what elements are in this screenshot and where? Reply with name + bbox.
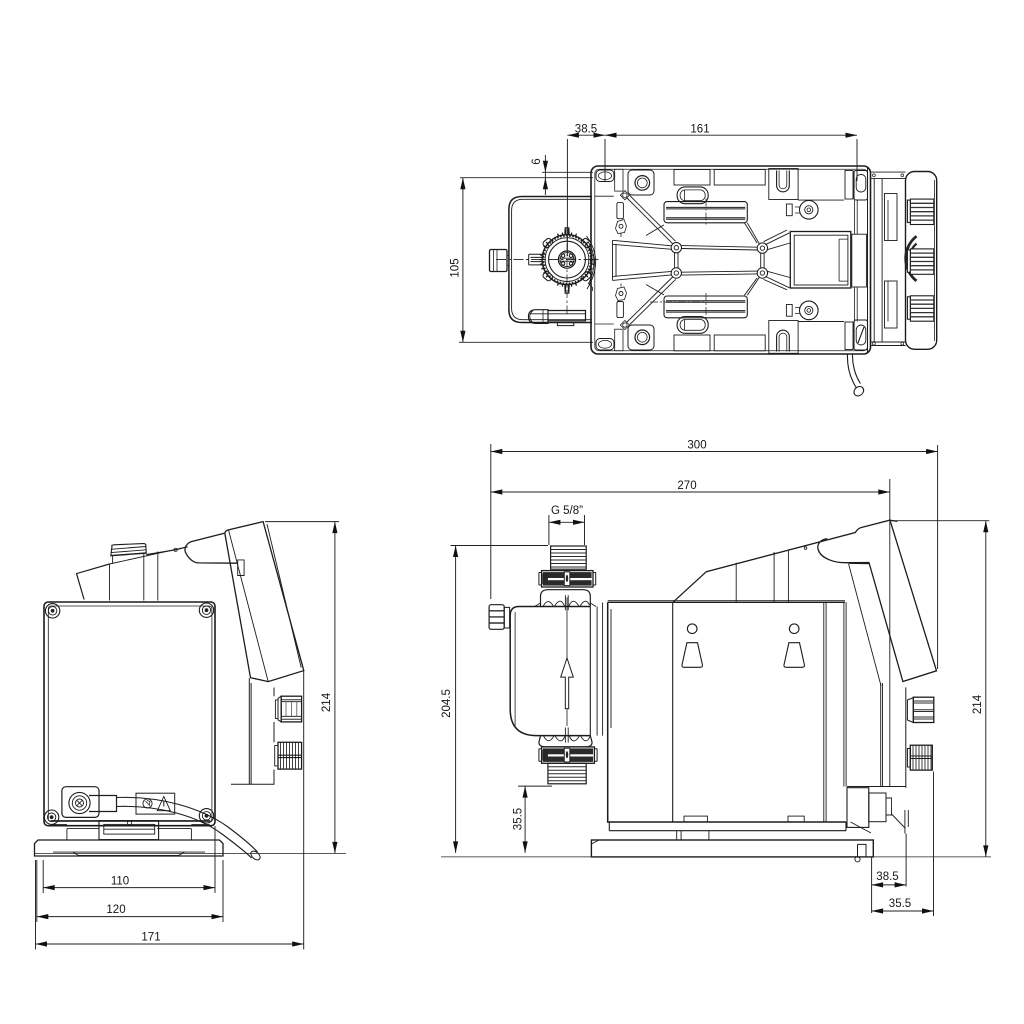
svg-text:120: 120 xyxy=(106,904,125,916)
svg-text:G 5/8”: G 5/8” xyxy=(551,505,583,517)
svg-text:161: 161 xyxy=(690,123,709,135)
svg-text:35.5: 35.5 xyxy=(889,898,911,910)
svg-text:171: 171 xyxy=(141,932,160,944)
svg-text:35.5: 35.5 xyxy=(512,808,524,830)
svg-text:300: 300 xyxy=(687,439,706,451)
svg-text:38.5: 38.5 xyxy=(876,871,898,883)
svg-text:214: 214 xyxy=(321,692,333,712)
svg-text:270: 270 xyxy=(677,480,696,492)
svg-text:204.5: 204.5 xyxy=(441,689,453,718)
svg-text:110: 110 xyxy=(111,875,129,887)
svg-text:6: 6 xyxy=(531,158,543,164)
svg-text:214: 214 xyxy=(972,694,984,714)
svg-text:38.5: 38.5 xyxy=(575,123,597,135)
svg-text:105: 105 xyxy=(450,258,462,277)
